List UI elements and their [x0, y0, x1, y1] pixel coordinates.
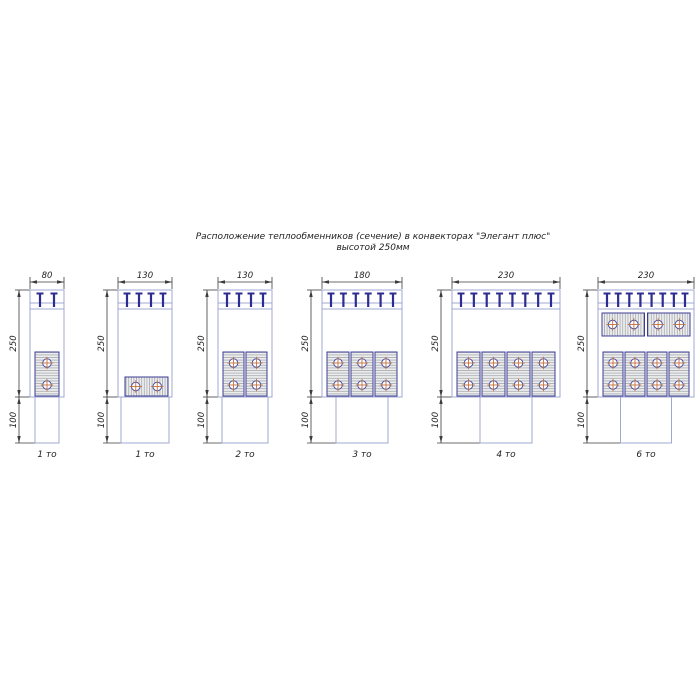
dimension-arrow	[265, 280, 272, 283]
width-dim-label: 230	[638, 271, 654, 281]
mounting-bracket	[473, 294, 475, 307]
dimension-arrow	[105, 390, 108, 397]
heat-exchanger	[35, 352, 59, 396]
width-dimension: 230	[598, 271, 694, 289]
dimension-arrow	[309, 397, 312, 404]
mounting-brackets	[604, 293, 689, 308]
mounting-bracket	[524, 294, 526, 307]
dimension-arrow	[17, 390, 20, 397]
heat-exchanger	[669, 352, 689, 396]
convector-diagram-4: 1802501003 то	[301, 271, 402, 460]
mounting-bracket	[650, 294, 652, 307]
base-duct	[222, 397, 268, 443]
mounting-bracket	[617, 294, 619, 307]
mounting-bracket	[250, 294, 252, 307]
base-dim-label: 100	[577, 412, 587, 428]
heat-exchanger	[602, 313, 645, 336]
height-dim-label: 250	[301, 335, 311, 351]
diagram-caption: 4 то	[496, 450, 516, 460]
convector-diagram-6: 2302501006 то	[577, 271, 694, 460]
heat-exchanger	[125, 377, 168, 396]
heat-exchanger	[327, 352, 349, 396]
dimension-arrow	[205, 290, 208, 297]
width-dim-label: 130	[237, 271, 253, 281]
base-duct	[336, 397, 388, 443]
heat-exchanger	[351, 352, 373, 396]
heat-exchanger	[648, 313, 691, 336]
dimension-arrow	[322, 280, 329, 283]
heat-exchanger	[603, 352, 623, 396]
heat-exchanger	[532, 352, 555, 396]
mounting-bracket	[53, 294, 55, 307]
heat-exchanger	[507, 352, 530, 396]
dimension-arrow	[105, 397, 108, 404]
heat-exchanger	[457, 352, 480, 396]
mounting-bracket	[639, 294, 641, 307]
width-dimension: 130	[118, 271, 172, 289]
heat-exchanger	[625, 352, 645, 396]
base-dim-label: 100	[301, 412, 311, 428]
dimension-arrow	[118, 280, 125, 283]
convector-diagram-5: 2302501004 то	[431, 271, 560, 460]
mounting-bracket	[628, 294, 630, 307]
base-duct	[480, 397, 532, 443]
convector-diagram-3: 1302501002 то	[197, 271, 272, 460]
dimension-arrow	[585, 290, 588, 297]
dimension-arrow	[395, 280, 402, 283]
mounting-bracket	[126, 294, 128, 307]
mounting-brackets	[224, 293, 267, 308]
width-dim-label: 180	[354, 271, 370, 281]
dimension-arrow	[218, 280, 225, 283]
diagram-caption: 1 то	[135, 450, 155, 460]
heat-exchanger	[482, 352, 505, 396]
page: { "title": { "line1": "Расположение тепл…	[0, 0, 700, 700]
dimension-arrow	[30, 280, 37, 283]
mounting-bracket	[367, 294, 369, 307]
width-dim-label: 230	[498, 271, 514, 281]
mounting-bracket	[606, 294, 608, 307]
width-dim-label: 130	[137, 271, 153, 281]
height-dim-label: 250	[431, 335, 441, 351]
height-dimension: 250100	[9, 290, 35, 443]
dimension-arrow	[585, 397, 588, 404]
convector-diagram-1: 802501001 то	[9, 271, 64, 460]
dimension-arrow	[439, 436, 442, 443]
diagram-caption: 6 то	[636, 450, 656, 460]
dimension-arrow	[309, 290, 312, 297]
dimension-arrow	[205, 397, 208, 404]
width-dimension: 130	[218, 271, 272, 289]
base-duct	[121, 397, 169, 443]
dimension-arrow	[553, 280, 560, 283]
dimension-arrow	[687, 280, 694, 283]
mounting-bracket	[662, 294, 664, 307]
height-dim-label: 250	[577, 335, 587, 351]
dimension-arrow	[439, 397, 442, 404]
convector-sections-drawing: 802501001 то1302501001 то1302501002 то18…	[0, 0, 700, 700]
mounting-bracket	[511, 294, 513, 307]
mounting-bracket	[392, 294, 394, 307]
dimension-arrow	[439, 290, 442, 297]
mounting-bracket	[330, 294, 332, 307]
dimension-arrow	[452, 280, 459, 283]
dimension-arrow	[105, 436, 108, 443]
base-duct	[621, 397, 672, 443]
mounting-bracket	[673, 294, 675, 307]
width-dimension: 230	[452, 271, 560, 289]
height-dimension: 250100	[97, 290, 121, 443]
mounting-brackets	[328, 293, 397, 308]
mounting-bracket	[262, 294, 264, 307]
mounting-bracket	[355, 294, 357, 307]
mounting-bracket	[550, 294, 552, 307]
dimension-arrow	[205, 436, 208, 443]
base-dim-label: 100	[197, 412, 207, 428]
heat-exchanger	[647, 352, 667, 396]
dimension-arrow	[309, 390, 312, 397]
width-dimension: 80	[30, 271, 64, 289]
dimension-arrow	[439, 390, 442, 397]
mounting-bracket	[537, 294, 539, 307]
height-dim-label: 250	[197, 335, 207, 351]
diagram-caption: 2 то	[235, 450, 255, 460]
dimension-arrow	[598, 280, 605, 283]
dimension-arrow	[105, 290, 108, 297]
heat-exchanger	[375, 352, 397, 396]
height-dim-label: 250	[97, 335, 107, 351]
mounting-bracket	[684, 294, 686, 307]
height-dim-label: 250	[9, 335, 19, 351]
diagram-caption: 3 то	[352, 450, 372, 460]
dimension-arrow	[309, 436, 312, 443]
dimension-arrow	[17, 436, 20, 443]
width-dimension: 180	[322, 271, 402, 289]
mounting-bracket	[380, 294, 382, 307]
mounting-bracket	[460, 294, 462, 307]
dimension-arrow	[165, 280, 172, 283]
mounting-bracket	[39, 294, 41, 307]
dimension-arrow	[205, 390, 208, 397]
width-dim-label: 80	[42, 271, 53, 281]
mounting-brackets	[37, 293, 58, 308]
mounting-bracket	[498, 294, 500, 307]
base-dim-label: 100	[431, 412, 441, 428]
dimension-arrow	[17, 290, 20, 297]
convector-diagram-2: 1302501001 то	[97, 271, 172, 460]
base-dim-label: 100	[9, 412, 19, 428]
dimension-arrow	[585, 390, 588, 397]
heat-exchanger	[223, 352, 244, 396]
mounting-brackets	[124, 293, 167, 308]
mounting-bracket	[486, 294, 488, 307]
mounting-bracket	[138, 294, 140, 307]
dimension-arrow	[17, 397, 20, 404]
dimension-arrow	[57, 280, 64, 283]
mounting-brackets	[458, 293, 555, 308]
mounting-bracket	[150, 294, 152, 307]
dimension-arrow	[585, 436, 588, 443]
mounting-bracket	[226, 294, 228, 307]
diagram-caption: 1 то	[37, 450, 57, 460]
mounting-bracket	[342, 294, 344, 307]
mounting-bracket	[238, 294, 240, 307]
base-dim-label: 100	[97, 412, 107, 428]
heat-exchanger	[246, 352, 267, 396]
base-duct	[35, 397, 59, 443]
mounting-bracket	[162, 294, 164, 307]
